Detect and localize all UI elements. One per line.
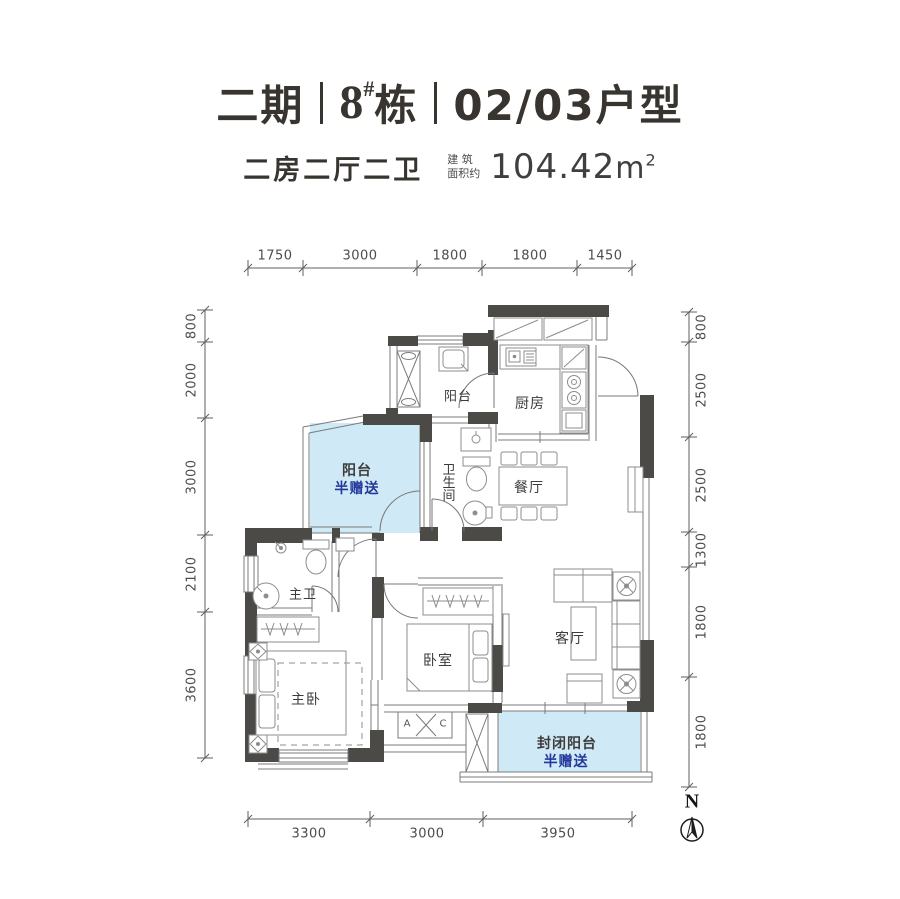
dim-right-5: 1800 xyxy=(695,714,710,749)
dim-left-4: 3600 xyxy=(185,667,200,702)
label-kitchen: 厨房 xyxy=(515,393,545,413)
label-living: 客厅 xyxy=(555,628,585,648)
label-master-bedroom: 主卧 xyxy=(291,689,321,709)
dim-left-3: 2100 xyxy=(185,556,200,591)
dim-left-1: 2000 xyxy=(185,362,200,397)
floor-plan-canvas xyxy=(0,0,900,899)
label-ac-c: C xyxy=(440,719,447,730)
label-enclosed-balcony-note: 半赠送 xyxy=(544,751,589,771)
label-bedroom: 卧室 xyxy=(423,650,453,670)
dim-bottom-1: 3000 xyxy=(409,827,444,842)
label-bathroom: 卫生间 xyxy=(438,463,457,502)
dim-top-1: 3000 xyxy=(342,249,377,264)
compass-icon xyxy=(681,817,703,841)
dim-right-4: 1800 xyxy=(695,604,710,639)
dim-bottom-2: 3950 xyxy=(540,827,575,842)
label-gift-balcony-note: 半赠送 xyxy=(335,478,380,498)
dim-right-0: 800 xyxy=(695,314,710,340)
dim-top-3: 1800 xyxy=(512,249,547,264)
dim-right-3: 1300 xyxy=(695,532,710,567)
label-dining: 餐厅 xyxy=(514,477,544,497)
dim-left-0: 800 xyxy=(185,313,200,339)
floorplan-page: 二期 8 # 栋 02/03户型 二房二厅二卫 建 筑 面积约 104.42m2 xyxy=(0,0,900,899)
label-enclosed-balcony: 封闭阳台 xyxy=(537,733,597,753)
dim-top-2: 1800 xyxy=(432,249,467,264)
dim-left-2: 3000 xyxy=(185,459,200,494)
dim-bottom-0: 3300 xyxy=(291,827,326,842)
label-gift-balcony: 阳台 xyxy=(342,460,372,480)
label-master-bath: 主卫 xyxy=(289,584,317,603)
dim-top-0: 1750 xyxy=(257,249,292,264)
dim-right-1: 2500 xyxy=(695,372,710,407)
dim-top-4: 1450 xyxy=(587,249,622,264)
north-label: N xyxy=(685,791,699,814)
label-ac-a: A xyxy=(404,719,411,730)
label-service-balcony: 阳台 xyxy=(444,386,472,405)
dim-right-2: 2500 xyxy=(695,467,710,502)
